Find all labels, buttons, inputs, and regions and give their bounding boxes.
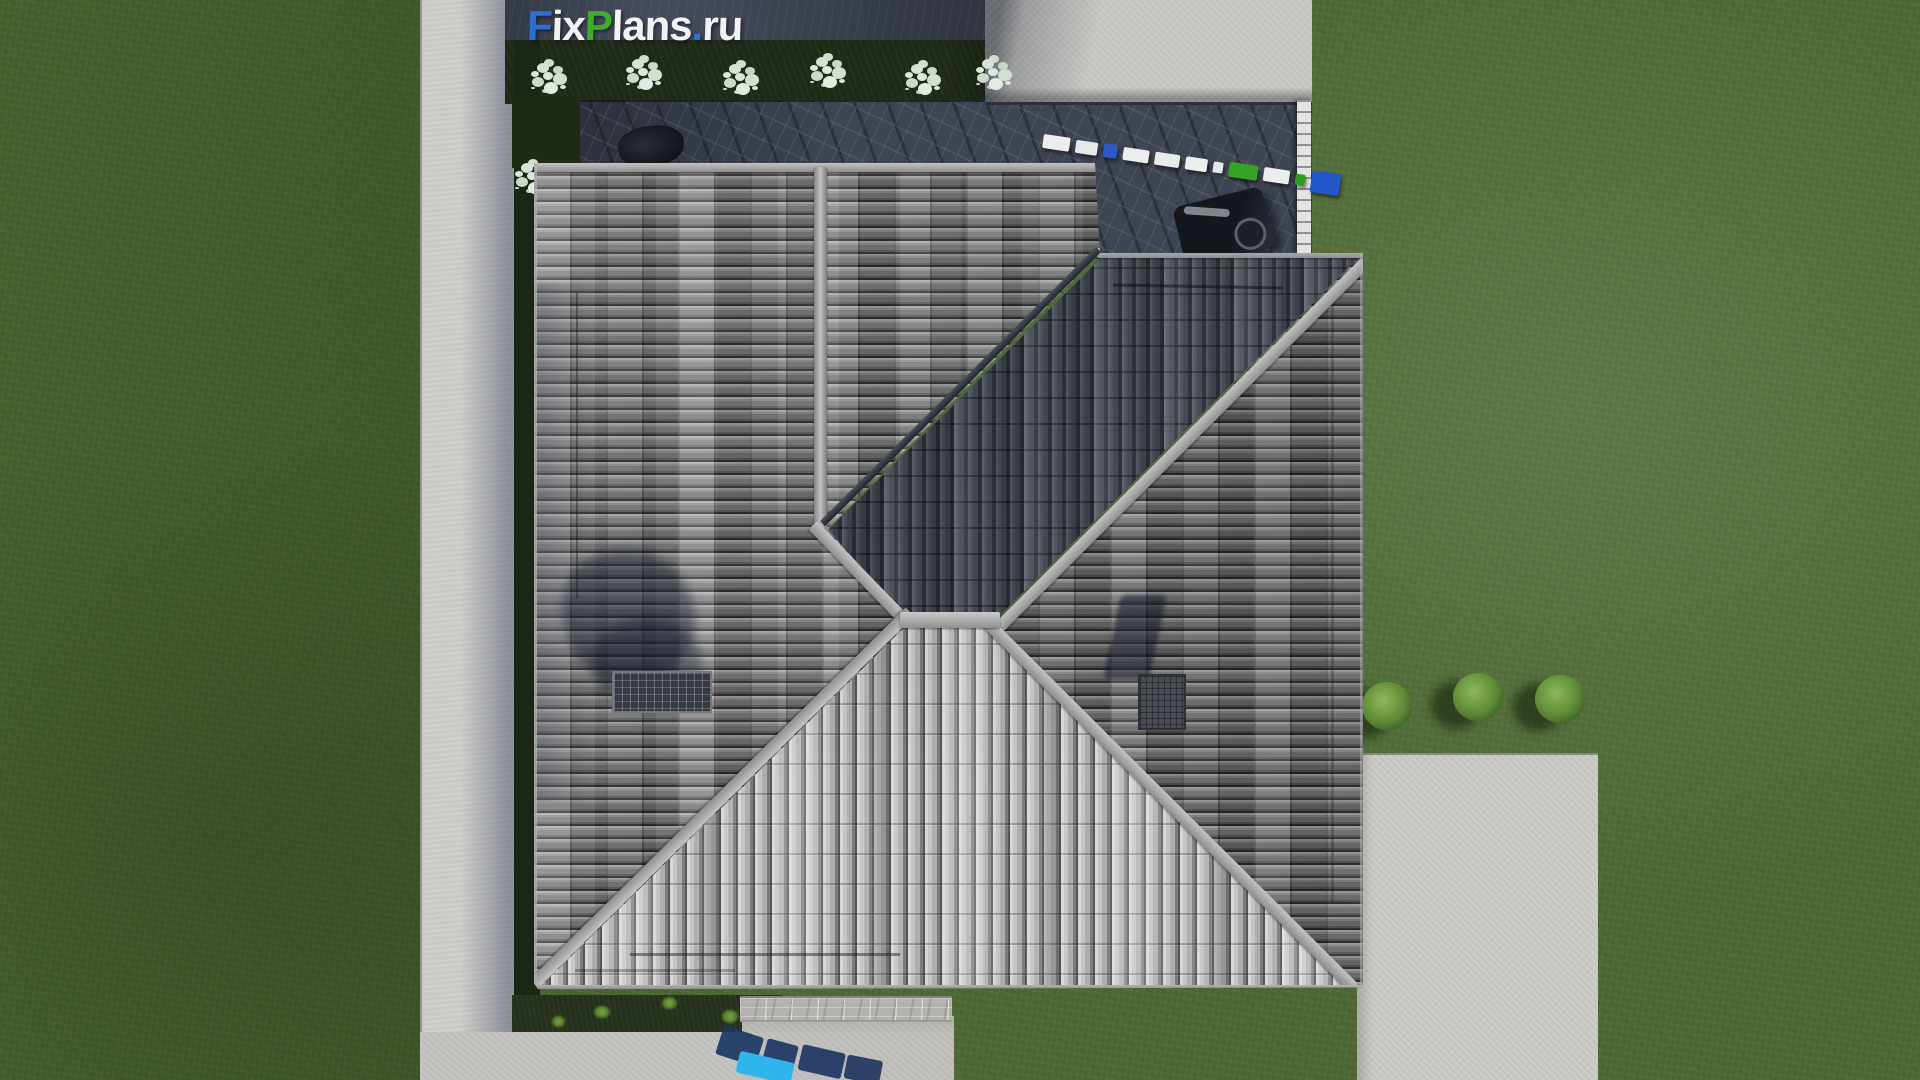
white-bush xyxy=(543,72,553,80)
green-bush xyxy=(1535,675,1585,723)
green-bush xyxy=(1453,673,1503,721)
eave-bottom xyxy=(534,985,1363,995)
grass-left xyxy=(0,0,420,1080)
logo-letter: ix xyxy=(551,2,586,49)
tree-shadow xyxy=(534,283,594,803)
aerial-house-render: FixPlans.ru xyxy=(0,0,1920,1080)
snow-guard xyxy=(630,953,900,956)
white-bush xyxy=(917,73,927,81)
garden-corner-left xyxy=(512,96,586,168)
white-bush xyxy=(988,68,998,76)
eave-left xyxy=(534,163,537,983)
plant xyxy=(552,1016,565,1027)
fixplans-logo: FixPlans.ru xyxy=(526,2,743,50)
plant xyxy=(662,997,677,1009)
snow-guard xyxy=(575,969,735,972)
logo-letter: P xyxy=(584,2,613,49)
roof-skylight xyxy=(612,671,712,713)
watermark-3d-block xyxy=(1309,170,1341,196)
green-bush xyxy=(1362,682,1412,730)
watermark-3d-block xyxy=(1294,173,1306,185)
concrete-pad-top-right xyxy=(985,0,1312,105)
logo-letter: ru xyxy=(702,2,744,49)
watermark-3d-block xyxy=(1263,167,1290,185)
white-bush xyxy=(735,73,745,81)
watermark-3d-block xyxy=(1212,161,1224,173)
watermark-3d-block xyxy=(1153,151,1180,168)
roof-seam xyxy=(1331,303,1334,903)
stone-walkway xyxy=(740,996,952,1022)
roof-seam xyxy=(576,293,578,598)
watermark-3d-block xyxy=(1103,143,1119,159)
plant xyxy=(594,1006,610,1018)
logo-letter: F xyxy=(526,2,552,49)
concrete-path-left xyxy=(420,0,519,1080)
watermark-3d-block xyxy=(797,1044,846,1079)
concrete-patio-bottom-right xyxy=(1357,753,1598,1080)
logo-letter: lans xyxy=(611,2,693,49)
watermark-3d-block xyxy=(1185,156,1209,172)
watermark-3d-block xyxy=(843,1054,883,1080)
eave-right xyxy=(1360,253,1363,985)
ridge-cap-vertical xyxy=(814,167,827,529)
concrete-bottom-left xyxy=(420,1032,744,1080)
watermark-3d-block xyxy=(1042,134,1071,152)
watermark-3d-block xyxy=(1075,139,1099,155)
white-bush xyxy=(822,66,832,74)
ridge-cap-center xyxy=(900,612,1000,628)
white-bush xyxy=(638,68,648,76)
watermark-3d-block xyxy=(1228,161,1259,180)
hip-roof xyxy=(534,163,1363,995)
chimney xyxy=(1138,674,1186,730)
watermark-3d-block xyxy=(1122,146,1149,163)
